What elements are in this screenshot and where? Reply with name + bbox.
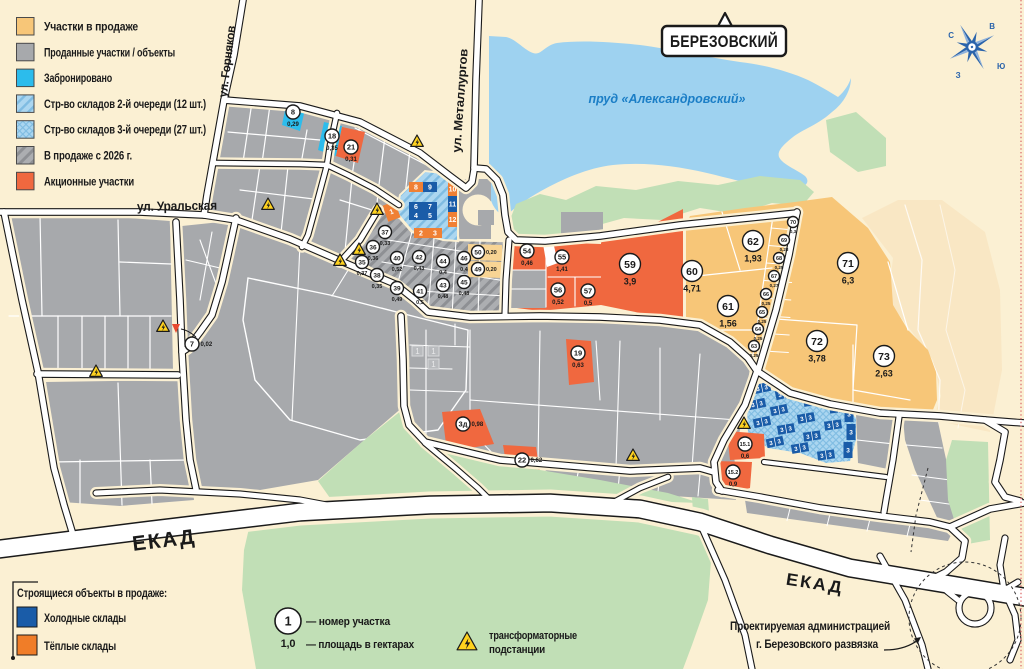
svg-text:0,52: 0,52	[552, 300, 564, 306]
svg-text:3,9: 3,9	[624, 277, 637, 287]
svg-text:36: 36	[369, 244, 377, 251]
svg-text:Тёплые склады: Тёплые склады	[44, 639, 116, 653]
svg-text:0,4: 0,4	[460, 267, 469, 273]
svg-text:0,02: 0,02	[201, 342, 213, 348]
svg-text:3: 3	[433, 231, 437, 238]
svg-text:Проектируемая администрацией: Проектируемая администрацией	[730, 621, 890, 633]
svg-text:41: 41	[416, 288, 424, 295]
svg-text:пруд «Александровский»: пруд «Александровский»	[589, 91, 746, 106]
svg-text:0,3: 0,3	[790, 229, 797, 234]
svg-text:6: 6	[414, 204, 418, 211]
svg-text:8: 8	[291, 108, 295, 117]
svg-text:45: 45	[460, 279, 468, 286]
svg-text:6,3: 6,3	[842, 276, 855, 286]
svg-text:0,28: 0,28	[780, 247, 789, 252]
svg-text:1,56: 1,56	[719, 319, 737, 329]
svg-text:5: 5	[428, 213, 432, 220]
svg-text:БЕРЕЗОВСКИЙ: БЕРЕЗОВСКИЙ	[670, 32, 778, 51]
svg-text:Холодные склады: Холодные склады	[44, 611, 126, 625]
svg-text:В продаже с 2026 г.: В продаже с 2026 г.	[44, 149, 132, 163]
svg-text:0,98: 0,98	[472, 422, 484, 428]
svg-text:— площадь в гектарах: — площадь в гектарах	[306, 639, 415, 651]
svg-text:46: 46	[460, 255, 468, 262]
svg-text:0,62: 0,62	[531, 458, 543, 464]
svg-text:11: 11	[449, 202, 457, 209]
svg-text:0,46: 0,46	[521, 261, 533, 267]
svg-text:4,71: 4,71	[683, 284, 701, 294]
svg-text:70: 70	[790, 220, 796, 226]
svg-text:9: 9	[428, 185, 432, 192]
svg-text:0,37: 0,37	[357, 271, 368, 277]
svg-text:3,78: 3,78	[808, 354, 826, 364]
svg-text:0,48: 0,48	[459, 291, 470, 297]
svg-text:15.2: 15.2	[728, 470, 739, 476]
svg-text:66: 66	[763, 292, 769, 298]
svg-text:40: 40	[393, 255, 401, 262]
svg-text:0,29: 0,29	[287, 122, 299, 128]
svg-text:35: 35	[358, 259, 366, 266]
svg-text:4: 4	[414, 213, 418, 220]
svg-text:1: 1	[285, 615, 292, 629]
svg-text:63: 63	[751, 344, 757, 350]
svg-text:1: 1	[415, 347, 420, 356]
svg-text:44: 44	[439, 258, 447, 265]
svg-text:0,6: 0,6	[741, 454, 750, 460]
svg-text:0,33: 0,33	[380, 241, 391, 247]
svg-text:69: 69	[781, 238, 787, 244]
svg-text:0,20: 0,20	[486, 267, 497, 273]
svg-text:0,27: 0,27	[770, 283, 779, 288]
svg-text:ул. Уральская: ул. Уральская	[137, 198, 217, 214]
svg-text:64: 64	[755, 327, 762, 333]
svg-text:54: 54	[523, 247, 532, 256]
svg-text:3д: 3д	[459, 420, 468, 429]
svg-text:Забронировано: Забронировано	[44, 71, 112, 85]
svg-text:67: 67	[771, 274, 777, 280]
svg-text:21: 21	[347, 143, 355, 152]
svg-text:18: 18	[328, 132, 336, 141]
svg-text:Ю: Ю	[997, 62, 1005, 71]
svg-text:Стр-во складов 3-й очереди (27: Стр-во складов 3-й очереди (27 шт.)	[44, 123, 206, 137]
svg-text:8: 8	[414, 185, 418, 192]
svg-text:65: 65	[759, 310, 765, 316]
svg-text:42: 42	[415, 254, 423, 261]
svg-text:1: 1	[431, 360, 436, 369]
svg-text:1: 1	[431, 347, 436, 356]
svg-text:0,31: 0,31	[345, 157, 357, 163]
svg-text:трансформаторные: трансформаторные	[489, 630, 577, 642]
svg-text:57: 57	[584, 287, 592, 296]
svg-text:39: 39	[393, 285, 401, 292]
svg-text:0,52: 0,52	[392, 267, 403, 273]
svg-text:1,93: 1,93	[744, 254, 762, 264]
svg-text:В: В	[989, 22, 995, 31]
svg-text:0,20: 0,20	[486, 250, 497, 256]
svg-text:3: 3	[846, 447, 850, 454]
svg-text:Акционные участки: Акционные участки	[44, 174, 134, 188]
svg-text:60: 60	[686, 266, 698, 278]
svg-text:0,25: 0,25	[750, 353, 759, 358]
svg-text:0,48: 0,48	[438, 294, 449, 300]
svg-text:0,35: 0,35	[326, 146, 338, 152]
svg-text:Участки в продаже: Участки в продаже	[44, 20, 138, 34]
svg-text:3: 3	[849, 429, 853, 436]
svg-text:0,5: 0,5	[416, 300, 424, 306]
svg-text:19: 19	[574, 349, 582, 358]
svg-text:37: 37	[381, 229, 389, 236]
svg-text:З: З	[956, 71, 961, 80]
svg-text:55: 55	[558, 253, 566, 262]
svg-text:59: 59	[624, 259, 636, 271]
svg-text:С: С	[948, 31, 954, 40]
svg-text:Проданные участки / объекты: Проданные участки / объекты	[44, 45, 175, 59]
svg-text:0,4: 0,4	[439, 270, 448, 276]
svg-text:0,36: 0,36	[368, 256, 379, 262]
svg-text:22: 22	[518, 456, 526, 465]
svg-text:2,63: 2,63	[875, 369, 893, 379]
svg-text:0,25: 0,25	[762, 301, 771, 306]
svg-text:49: 49	[474, 266, 482, 273]
svg-text:подстанции: подстанции	[489, 644, 545, 656]
svg-text:0,9: 0,9	[729, 482, 738, 488]
svg-text:62: 62	[747, 236, 759, 248]
svg-text:68: 68	[776, 256, 782, 262]
svg-text:71: 71	[842, 258, 854, 270]
svg-text:0,43: 0,43	[414, 266, 425, 272]
svg-text:50: 50	[474, 249, 482, 256]
svg-text:0,25: 0,25	[775, 265, 784, 270]
svg-text:43: 43	[439, 282, 447, 289]
svg-text:г. Березовского развязка: г. Березовского развязка	[756, 639, 879, 651]
svg-text:0,63: 0,63	[572, 363, 584, 369]
svg-text:0,35: 0,35	[372, 284, 383, 290]
svg-text:12: 12	[449, 217, 457, 224]
svg-text:Строящиеся объекты в продаже:: Строящиеся объекты в продаже:	[17, 586, 167, 600]
svg-text:61: 61	[722, 301, 734, 313]
svg-text:7: 7	[190, 340, 194, 349]
svg-text:72: 72	[811, 336, 823, 348]
svg-text:— номер участка: — номер участка	[306, 616, 391, 628]
svg-text:73: 73	[878, 351, 890, 363]
svg-text:0,5: 0,5	[584, 301, 593, 307]
svg-text:1,0: 1,0	[281, 638, 296, 650]
svg-text:0,49: 0,49	[392, 297, 403, 303]
svg-text:15.1: 15.1	[740, 442, 751, 448]
svg-text:7: 7	[428, 204, 432, 211]
svg-text:56: 56	[554, 286, 562, 295]
svg-text:2: 2	[419, 231, 423, 238]
svg-text:1,41: 1,41	[556, 267, 568, 273]
svg-text:Стр-во складов 2-й очереди (12: Стр-во складов 2-й очереди (12 шт.)	[44, 97, 206, 111]
svg-text:38: 38	[373, 272, 381, 279]
